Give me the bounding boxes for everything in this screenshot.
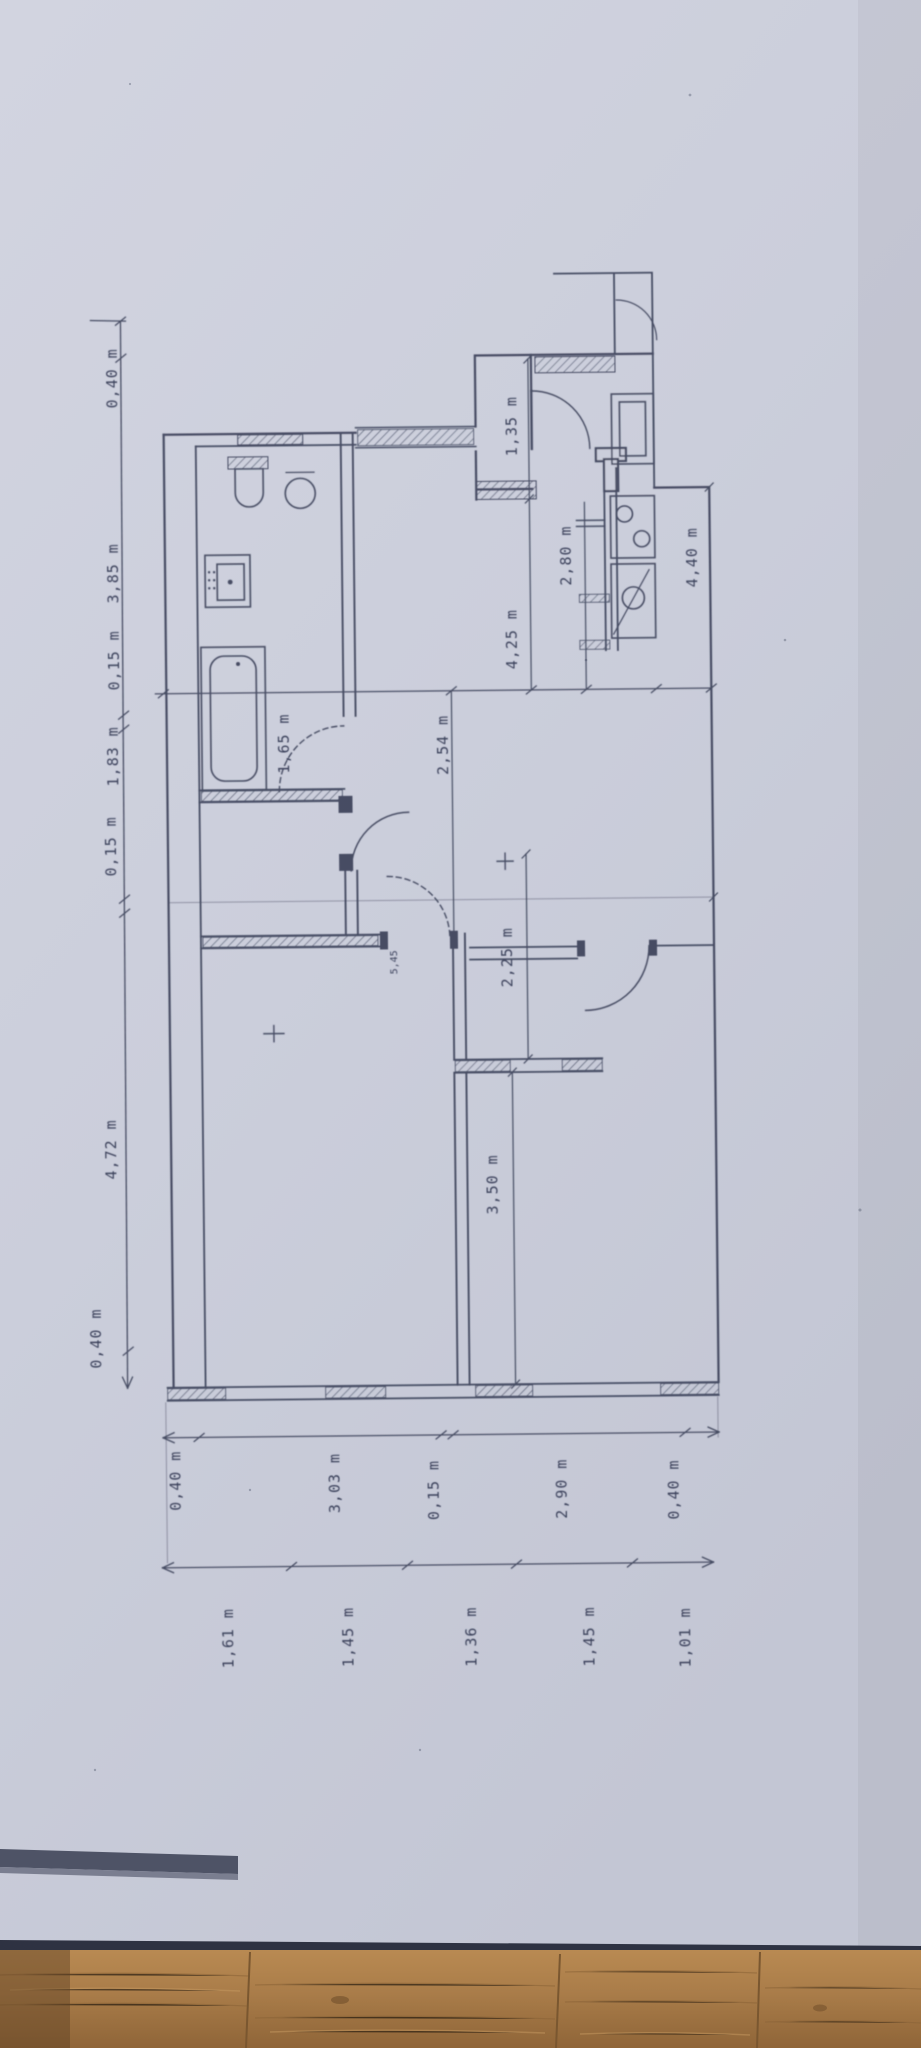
floorplan-canvas: 0,40 m 3,85 m 0,15 m 1,83 m 0,15 m 4,72 … [0,0,921,2048]
dim-label-entrance: 1,35 m [502,396,521,456]
dim-label: 0,40 m [166,1451,185,1511]
dim-label: 2,25 m [498,927,517,987]
dim-label: 4,40 m [683,527,702,587]
wood-floor [0,1950,921,2048]
dim-label: 0,40 m [664,1459,683,1519]
dim-label: 1,01 m [676,1607,695,1667]
dim-label: 3,85 m [104,543,123,603]
dim-label: 0,15 m [105,630,124,690]
dim-label: 2,54 m [434,715,453,775]
door-jamb [338,796,352,813]
dim-label: 2,90 m [552,1458,571,1518]
dim-label: 3,50 m [483,1154,502,1214]
dim-label: 0,40 m [103,348,122,408]
dim-label: 1,65 m [275,713,294,773]
dim-label: 1,83 m [104,726,123,786]
door-jamb [577,940,585,956]
door-jamb [649,940,657,956]
dim-label: 5,45 [389,950,400,974]
dim-label: 0,15 m [424,1460,443,1520]
dim-label: 1,61 m [219,1608,238,1668]
dim-label: 4,25 m [502,609,521,669]
window-top-wall [238,434,303,445]
toilet-cistern-icon [228,457,268,469]
door-jamb [380,931,388,949]
dim-label: 3,03 m [325,1453,344,1513]
entry-walkway-hatch [358,429,474,446]
dim-label: 4,72 m [102,1119,121,1179]
dim-label: 0,40 m [87,1308,106,1368]
dim-label: 1,45 m [339,1607,358,1667]
dim-label: 1,36 m [462,1606,481,1666]
dim-label: 0,15 m [102,816,121,876]
dim-label: 1,45 m [580,1606,599,1666]
paper-background [0,0,921,1952]
floorplan-photo: 0,40 m 3,85 m 0,15 m 1,83 m 0,15 m 4,72 … [0,0,921,2048]
dim-label: 2,80 m [557,525,576,585]
wardrobe-hatch [535,356,615,373]
paper-edge-shading [858,0,921,1952]
